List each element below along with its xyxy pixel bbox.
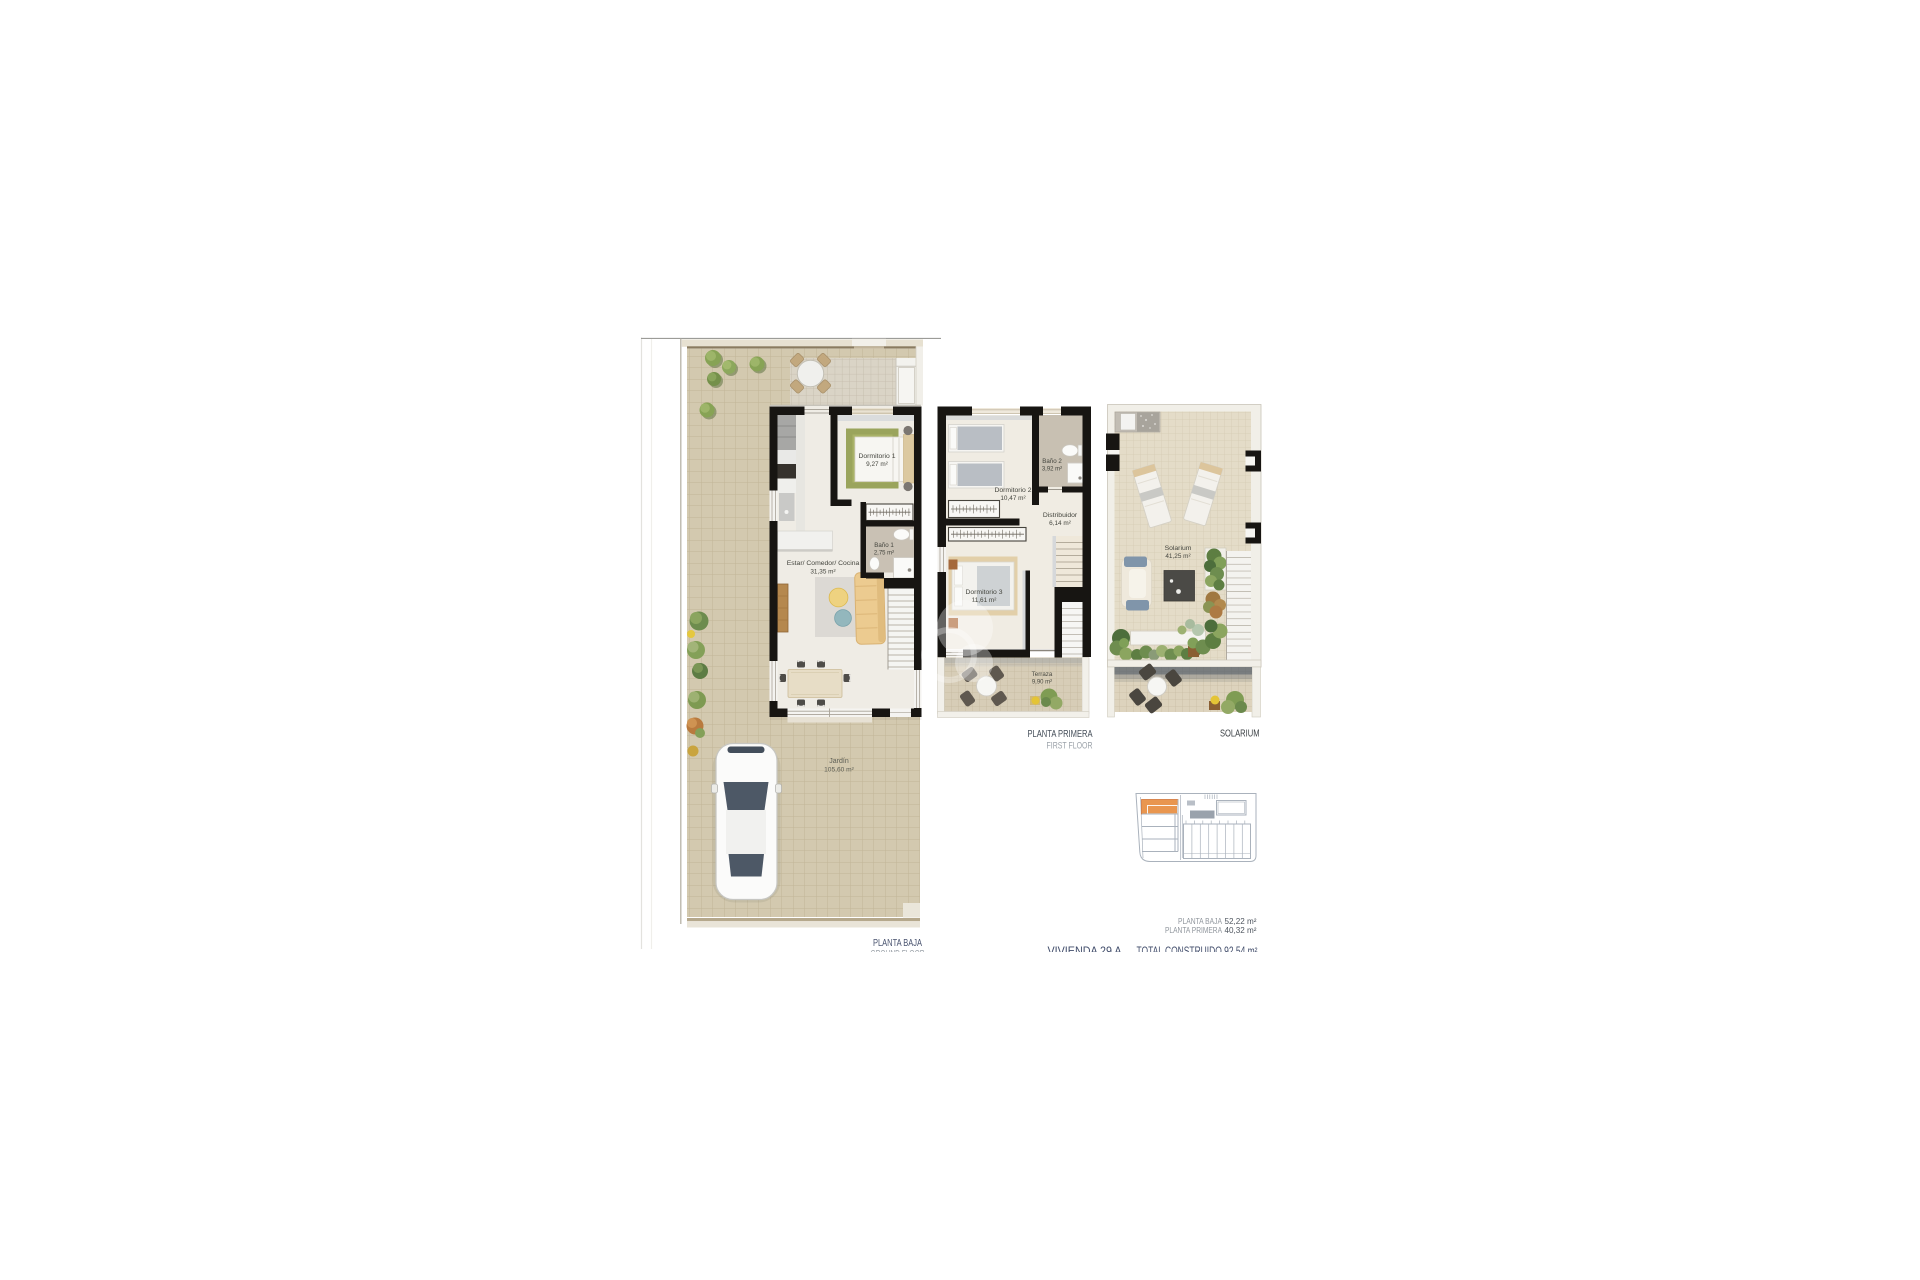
svg-text:PLANTA BAJA: PLANTA BAJA [873,937,922,949]
svg-text:FIRST FLOOR: FIRST FLOOR [1047,741,1093,752]
svg-text:Dormitorio 2: Dormitorio 2 [994,487,1031,494]
svg-text:52,22 m²: 52,22 m² [1225,917,1257,926]
svg-text:Solarium: Solarium [1165,545,1192,552]
svg-text:41,25 m²: 41,25 m² [1165,553,1190,560]
svg-text:Estar/ Comedor/ Cocina: Estar/ Comedor/ Cocina [787,560,860,567]
svg-text:2,75 m²: 2,75 m² [874,551,894,557]
svg-text:9,27 m²: 9,27 m² [866,461,888,468]
svg-text:10,47 m²: 10,47 m² [1000,495,1025,502]
svg-text:6,14 m²: 6,14 m² [1049,520,1071,527]
svg-text:Distribuidor: Distribuidor [1043,512,1078,519]
svg-text:31,35 m²: 31,35 m² [810,569,835,576]
svg-text:PLANTA PRIMERA: PLANTA PRIMERA [1028,728,1093,740]
svg-text:9,90 m²: 9,90 m² [1032,680,1052,686]
svg-text:Baño 1: Baño 1 [874,542,894,549]
svg-text:SOLARIUM: SOLARIUM [1220,729,1260,740]
svg-text:Jardín: Jardín [829,758,849,765]
svg-text:Dormitorio 1: Dormitorio 1 [858,453,895,460]
svg-text:40,32 m²: 40,32 m² [1225,926,1257,935]
svg-text:PLANTA PRIMERA: PLANTA PRIMERA [1165,926,1222,935]
svg-text:Dormitorio 3: Dormitorio 3 [965,589,1002,596]
svg-text:105,60 m²: 105,60 m² [824,767,854,774]
svg-text:PLANTA BAJA: PLANTA BAJA [1178,917,1222,926]
svg-text:Baño 2: Baño 2 [1042,458,1062,465]
svg-text:3,92 m²: 3,92 m² [1042,467,1062,473]
svg-text:Terraza: Terraza [1032,671,1053,678]
